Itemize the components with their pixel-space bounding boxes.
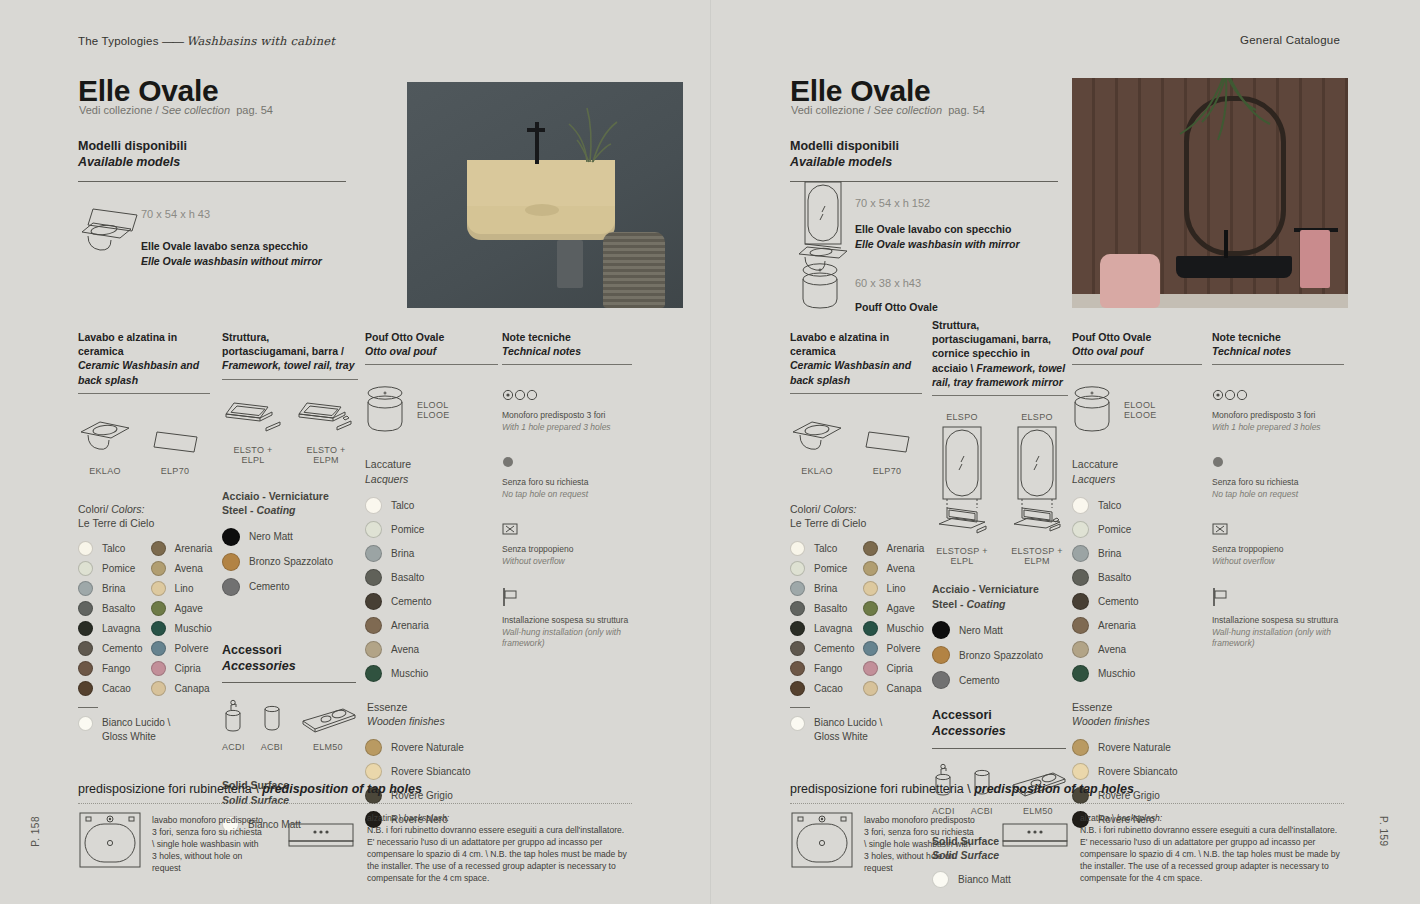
color-name: Polvere xyxy=(887,643,921,654)
color-name: Talco xyxy=(102,543,125,554)
notes-list-right: Monoforo predisposto 3 fori With 1 hole … xyxy=(1212,387,1344,650)
wood-swatch xyxy=(365,763,382,780)
color-name: Brina xyxy=(814,583,837,594)
code-basin-left: EKLAO xyxy=(78,466,132,476)
steel-swatch xyxy=(932,646,950,664)
steel-name: Cemento xyxy=(249,581,290,592)
lacquer-name: Basalto xyxy=(1098,572,1131,583)
gloss-white-line1: Bianco Lucido \ xyxy=(814,717,882,728)
left-col1-header: Lavabo e alzatina in ceramica Ceramic Wa… xyxy=(78,330,210,394)
gloss-white-row: Bianco Lucido \ Gloss White xyxy=(790,716,922,744)
model1-desc-left: Elle Ovale lavabo senza specchio Elle Ov… xyxy=(141,239,322,268)
code-elool: ELOOL xyxy=(1124,400,1157,410)
wood-swatch-row: Rovere Naturale xyxy=(1072,739,1202,756)
lacquer-swatch xyxy=(1072,593,1089,610)
lacquer-name: Pomice xyxy=(391,524,424,535)
left-col3-header-it: Pouf Otto Ovale xyxy=(365,330,498,344)
photo-towel-pink xyxy=(1300,230,1330,288)
color-name: Avena xyxy=(175,563,203,574)
wall-hung-icon xyxy=(1212,588,1228,606)
color-swatch-row: Muschio xyxy=(151,621,213,636)
models-heading-it: Modelli disponibili xyxy=(790,138,1058,154)
lacquer-swatch xyxy=(365,545,382,562)
notes-list-left: Monoforo predisposto 3 fori With 1 hole … xyxy=(502,387,632,650)
gloss-white-line2: Gloss White xyxy=(814,731,868,742)
color-swatch-row: Basalto xyxy=(790,601,855,616)
color-swatch xyxy=(863,581,878,596)
tray-drawing-icon xyxy=(299,703,357,733)
color-swatch xyxy=(151,641,166,656)
page-title-left: Elle Ovale xyxy=(78,74,218,108)
lacquer-swatch-row: Basalto xyxy=(365,569,498,586)
tap-holes-note1-left: lavabo monoforo predisposto 3 fori, senz… xyxy=(152,814,264,874)
tap-holes-heading-right: predisposizione fori rubinetteria \ pred… xyxy=(790,782,1134,796)
swatch-divider xyxy=(78,707,98,708)
color-swatch-row: Polvere xyxy=(863,641,925,656)
lacquer-swatch-row: Muschio xyxy=(1072,665,1202,682)
color-name: Brina xyxy=(102,583,125,594)
lacquer-swatch-row: Arenaria xyxy=(1072,617,1202,634)
color-swatch-row: Lino xyxy=(863,581,925,596)
no-overflow-icon xyxy=(1212,523,1228,535)
note-en: Without overflow xyxy=(1212,556,1344,568)
color-name: Basalto xyxy=(814,603,847,614)
code-elm50-left: ELM50 xyxy=(299,742,357,752)
tumbler-drawing-icon xyxy=(262,703,282,733)
tap-holes-dotted-rule-right xyxy=(790,803,1344,804)
color-name: Muschio xyxy=(887,623,924,634)
lacquer-swatch-row: Pomice xyxy=(1072,521,1202,538)
backsplash-front-drawing-icon xyxy=(288,822,354,850)
color-swatch-row: Brina xyxy=(78,581,143,596)
tap-holes-heading-it: predisposizione fori rubinetteria \ xyxy=(790,782,974,796)
photo-towel xyxy=(557,240,583,288)
wood-swatch-row: Rovere Sbiancato xyxy=(1072,763,1202,780)
lacquer-swatch-row: Basalto xyxy=(1072,569,1202,586)
color-swatch xyxy=(790,601,805,616)
colori-column-2: Arenaria Avena Lino Agave xyxy=(151,541,213,701)
basin-drawing-icon xyxy=(790,416,844,456)
breadcrumb-section: The Typologies xyxy=(78,35,159,47)
laccature-swatches-left: Talco Pomice Brina Basalto xyxy=(365,497,498,682)
lacquer-name: Muschio xyxy=(391,668,428,679)
gloss-white-line1: Bianco Lucido \ xyxy=(102,717,170,728)
steel-swatches-left: Nero Matt Bronzo Spazzolato Cemento xyxy=(222,528,358,596)
laccature-swatches-right: Talco Pomice Brina Basalto xyxy=(1072,497,1202,682)
backsplash-front-drawing-icon xyxy=(1002,822,1068,850)
color-name: Muschio xyxy=(175,623,212,634)
note-it: Monoforo predisposto 3 fori xyxy=(1212,410,1344,422)
color-swatch-row: Lavagna xyxy=(790,621,855,636)
lacquer-name: Talco xyxy=(391,500,414,511)
color-swatch xyxy=(863,621,878,636)
lacquer-swatch-row: Avena xyxy=(1072,641,1202,658)
left-col3-header: Pouf Otto Ovale Otto oval pouf xyxy=(365,330,498,365)
note-en: Without overflow xyxy=(502,556,632,568)
color-swatch-row: Cipria xyxy=(151,661,213,676)
right-col3-header-en: Otto oval pouf xyxy=(1072,344,1202,358)
colori-title-left: Colori/ Colors: Le Terre di Cielo xyxy=(78,502,210,531)
color-name: Cemento xyxy=(814,643,855,654)
steel-swatches-right: Nero Matt Bronzo Spazzolato Cemento xyxy=(932,621,1068,689)
collection-ref-right: Vedi collezione / See collection pag. 54 xyxy=(791,104,985,116)
colori-title-it: Colori/ xyxy=(790,503,823,515)
colori-title-en: Colors: xyxy=(111,503,144,515)
right-col-notes: Note tecniche Technical notes Monoforo p… xyxy=(1212,330,1344,650)
color-swatch xyxy=(790,621,805,636)
lacquer-name: Avena xyxy=(391,644,419,655)
note2-label-en: backsplash: xyxy=(404,813,449,823)
page-number-left: P. 158 xyxy=(30,816,41,847)
color-name: Cacao xyxy=(814,683,843,694)
lacquer-swatch xyxy=(365,617,382,634)
wood-swatch xyxy=(1072,739,1089,756)
photo-faucet xyxy=(1224,230,1228,258)
color-name: Lavagna xyxy=(814,623,852,634)
color-swatch xyxy=(78,581,93,596)
color-swatch-row: Cipria xyxy=(863,661,925,676)
right-col1-header-it: Lavabo e alzatina in ceramica xyxy=(790,330,922,358)
color-swatch xyxy=(790,716,805,731)
color-swatch xyxy=(790,561,805,576)
product-photo-left xyxy=(407,82,683,308)
color-swatch xyxy=(863,661,878,676)
model1-dims-left: 70 x 54 x h 43 xyxy=(141,208,210,220)
lacquer-swatch xyxy=(1072,569,1089,586)
photo-backsplash xyxy=(467,160,615,208)
right-col3-header-it: Pouf Otto Ovale xyxy=(1072,330,1202,344)
model1-dims-right: 70 x 54 x h 152 xyxy=(855,197,930,209)
page-number-right: P. 159 xyxy=(1378,816,1389,847)
lacquer-name: Pomice xyxy=(1098,524,1131,535)
color-name: Agave xyxy=(175,603,203,614)
basin-top-view-drawing-icon xyxy=(791,812,853,868)
steel-swatch-row: Bronzo Spazzolato xyxy=(222,553,358,571)
basin-top-view-drawing-icon xyxy=(79,812,141,868)
wood-swatch-row: Rovere Sbiancato xyxy=(365,763,498,780)
code-basin-right: EKLAO xyxy=(790,466,844,476)
color-swatch-row: Cemento xyxy=(790,641,855,656)
colori-subtitle: Le Terre di Cielo xyxy=(78,517,154,529)
essenze-title-it: Essenze xyxy=(1072,700,1202,715)
lacquer-swatch xyxy=(365,497,382,514)
lacquer-swatch-row: Talco xyxy=(365,497,498,514)
lacquer-swatch-row: Muschio xyxy=(365,665,498,682)
solid-surface-name: Bianco Matt xyxy=(958,874,1011,885)
laccature-title-it: Laccature xyxy=(1072,457,1202,472)
tap-holes-heading-en: predisposition of tap holes xyxy=(974,782,1134,796)
steel-swatch xyxy=(932,621,950,639)
color-swatch-row: Agave xyxy=(151,601,213,616)
color-swatch xyxy=(790,541,805,556)
photo-plant-icon xyxy=(557,100,627,164)
right-col4-header-en: Technical notes xyxy=(1212,344,1344,358)
lacquer-swatch xyxy=(365,569,382,586)
code-mirror-right: ELSPO xyxy=(1006,412,1068,422)
accessories-heading-it: Accessori xyxy=(222,642,356,658)
lacquer-swatch-row: Cemento xyxy=(1072,593,1202,610)
steel-title-left: Acciaio - Verniciature Solid SurfaceStee… xyxy=(222,489,358,518)
collection-ref-en: See collection xyxy=(162,104,231,116)
models-heading-left: Modelli disponibili Available models xyxy=(78,138,346,182)
note-it: Installazione sospesa su struttura xyxy=(1212,615,1344,627)
color-swatch xyxy=(790,661,805,676)
right-col3-header: Pouf Otto Ovale Otto oval pouf xyxy=(1072,330,1202,365)
left-col-framework: Struttura, portasciugamani, barra / Fram… xyxy=(222,330,358,838)
lacquer-swatch xyxy=(365,593,382,610)
collection-ref-en: See collection xyxy=(874,104,943,116)
note-it: Senza troppopieno xyxy=(1212,544,1344,556)
color-swatch-row: Canapa xyxy=(863,681,925,696)
photo-basket xyxy=(603,232,665,308)
three-holes-icon xyxy=(1212,389,1248,401)
steel-swatch-row: Bronzo Spazzolato xyxy=(932,646,1068,664)
left-col-pouf: Pouf Otto Ovale Otto oval pouf ELOOL ELO… xyxy=(365,330,498,835)
pouf-model-drawing-icon xyxy=(800,262,840,312)
color-swatch xyxy=(78,541,93,556)
tap-holes-heading-en: predisposition of tap holes xyxy=(262,782,422,796)
color-name: Canapa xyxy=(887,683,922,694)
color-name: Pomice xyxy=(102,563,135,574)
color-name: Canapa xyxy=(175,683,210,694)
note2-label-it: alzatina \ xyxy=(1080,813,1117,823)
color-swatch xyxy=(78,661,93,676)
color-swatch-row: Cemento xyxy=(78,641,143,656)
essenze-title-right: Essenze Wooden finishes xyxy=(1072,700,1202,729)
wood-swatch xyxy=(365,739,382,756)
note-en: No tap hole on request xyxy=(1212,489,1344,501)
pouf-drawing-icon xyxy=(1072,385,1112,435)
catalogue-spread: The Typologies —— Washbasins with cabine… xyxy=(0,0,1420,904)
note-en: No tap hole on request xyxy=(502,489,632,501)
color-swatch-row: Canapa xyxy=(151,681,213,696)
color-swatch-row: Agave xyxy=(863,601,925,616)
three-holes-icon xyxy=(502,389,538,401)
lacquer-swatch xyxy=(365,521,382,538)
color-name: Bianco Lucido \ Gloss White xyxy=(814,716,882,744)
color-name: Cipria xyxy=(175,663,201,674)
note-it: Installazione sospesa su struttura xyxy=(502,615,632,627)
color-swatch xyxy=(151,541,166,556)
color-swatch-row: Brina xyxy=(790,581,855,596)
color-swatch xyxy=(151,601,166,616)
pouf-codes-right: ELOOL ELOOE xyxy=(1124,400,1157,420)
right-col1-header: Lavabo e alzatina in ceramica Ceramic Wa… xyxy=(790,330,922,394)
model2-desc-right: Pouff Otto Ovale xyxy=(855,300,938,315)
color-name: Bianco Lucido \ Gloss White xyxy=(102,716,170,744)
color-name: Fango xyxy=(102,663,130,674)
note-en: Wall-hung installation (only with framew… xyxy=(1212,627,1344,651)
lacquer-swatch xyxy=(1072,497,1089,514)
backsplash-panel-drawing-icon xyxy=(862,426,912,456)
lacquer-swatch xyxy=(1072,641,1089,658)
tap-holes-note1-right: lavabo monoforo predisposto 3 fori, senz… xyxy=(864,814,976,874)
lacquer-name: Brina xyxy=(1098,548,1121,559)
color-swatch-row: Basalto xyxy=(78,601,143,616)
color-swatch xyxy=(151,661,166,676)
wood-swatch-row: Rovere Naturale xyxy=(365,739,498,756)
note-it: Monoforo predisposto 3 fori xyxy=(502,410,632,422)
color-swatch-row: Cacao xyxy=(78,681,143,696)
note2-label-en: backsplash: xyxy=(1117,813,1162,823)
lacquer-swatch-row: Avena xyxy=(365,641,498,658)
left-col-ceramic: Lavabo e alzatina in ceramica Ceramic Wa… xyxy=(78,330,210,749)
photo-faucet-spout xyxy=(527,128,545,132)
basin-drawing-icon xyxy=(78,416,132,456)
color-name: Agave xyxy=(887,603,915,614)
color-swatch-row: Arenaria xyxy=(863,541,925,556)
color-name: Basalto xyxy=(102,603,135,614)
steel-name: Nero Matt xyxy=(959,625,1003,636)
color-swatch xyxy=(151,561,166,576)
photo-pouf-pink xyxy=(1100,254,1160,308)
left-col1-header-en: Ceramic Washbasin and back splash xyxy=(78,358,210,386)
color-swatch-row: Talco xyxy=(790,541,855,556)
no-hole-icon xyxy=(1212,456,1224,468)
lacquer-swatch-row: Arenaria xyxy=(365,617,498,634)
mirror-framework-drawing-icon xyxy=(937,426,987,538)
pouf-codes-left: ELOOL ELOOE xyxy=(417,400,450,420)
code-frame2-right: ELSTOSP + ELPM xyxy=(1006,546,1068,566)
colori-title-right: Colori/ Colors: Le Terre di Cielo xyxy=(790,502,922,531)
accessories-heading-left: Accessori Accessories xyxy=(222,642,356,684)
lacquer-swatch xyxy=(365,641,382,658)
no-hole-icon xyxy=(502,456,514,468)
color-swatch-row: Pomice xyxy=(790,561,855,576)
color-swatch xyxy=(78,716,93,731)
color-swatch-row: Cacao xyxy=(790,681,855,696)
steel-title-en: Steel - Coating xyxy=(932,597,1068,612)
lacquer-swatch xyxy=(365,665,382,682)
code-elool: ELOOL xyxy=(417,400,450,410)
color-swatch xyxy=(78,621,93,636)
page-gutter-divider xyxy=(710,0,711,904)
collection-ref-page: pag. 54 xyxy=(948,104,985,116)
note-en: With 1 hole prepared 3 holes xyxy=(502,422,632,434)
mirror-framework-towel-drawing-icon xyxy=(1012,426,1062,538)
lacquer-swatch-row: Brina xyxy=(365,545,498,562)
note2-body: N.B. i fori rubinetto dovranno essere es… xyxy=(367,825,627,883)
colori-title-en: Colors: xyxy=(823,503,856,515)
essenze-title-left: Essenze Wooden finishes xyxy=(367,700,498,729)
steel-swatch-row: Cemento xyxy=(222,578,358,596)
code-frame2-left: ELSTO + ELPM xyxy=(294,445,358,465)
code-splash-right: ELP70 xyxy=(862,466,912,476)
lacquer-swatch-row: Talco xyxy=(1072,497,1202,514)
color-swatch xyxy=(78,641,93,656)
color-swatch xyxy=(151,621,166,636)
steel-title-it: Acciaio - Verniciature xyxy=(222,489,358,504)
tap-holes-note2-right: alzatina \ backsplash: N.B. i fori rubin… xyxy=(1080,812,1344,884)
tap-holes-heading-left: predisposizione fori rubinetteria \ pred… xyxy=(78,782,422,796)
colori-subtitle: Le Terre di Cielo xyxy=(790,517,866,529)
left-col4-header: Note tecniche Technical notes xyxy=(502,330,632,365)
header-right-label: General Catalogue xyxy=(1240,34,1340,46)
wood-name: Rovere Naturale xyxy=(1098,742,1171,753)
essenze-title-en: Wooden finishes xyxy=(367,714,498,729)
steel-swatch xyxy=(932,671,950,689)
note-en: With 1 hole prepared 3 holes xyxy=(1212,422,1344,434)
color-name: Cipria xyxy=(887,663,913,674)
steel-swatch-row: Nero Matt xyxy=(222,528,358,546)
steel-swatch xyxy=(222,528,240,546)
color-name: Polvere xyxy=(175,643,209,654)
color-swatch xyxy=(863,561,878,576)
lacquer-name: Arenaria xyxy=(391,620,429,631)
photo-basin-bowl xyxy=(525,204,559,216)
left-col2-header-en: Framework, towel rail, tray xyxy=(222,359,354,371)
model1-desc-it: Elle Ovale lavabo con specchio xyxy=(855,222,1020,237)
color-swatch-row: Arenaria xyxy=(151,541,213,556)
color-swatch-row: Lavagna xyxy=(78,621,143,636)
left-col4-header-it: Note tecniche xyxy=(502,330,632,344)
color-swatch-row: Fango xyxy=(78,661,143,676)
collection-ref-it: Vedi collezione / xyxy=(791,104,874,116)
code-splash-left: ELP70 xyxy=(150,466,200,476)
right-col-pouf: Pouf Otto Ovale Otto oval pouf ELOOL ELO… xyxy=(1072,330,1202,835)
page-title-right: Elle Ovale xyxy=(790,74,930,108)
lacquer-name: Arenaria xyxy=(1098,620,1136,631)
collection-ref-it: Vedi collezione / xyxy=(79,104,162,116)
model1-desc-right: Elle Ovale lavabo con specchio Elle Oval… xyxy=(855,222,1020,251)
backsplash-panel-drawing-icon xyxy=(150,426,200,456)
gloss-white-row: Bianco Lucido \ Gloss White xyxy=(78,716,210,744)
color-name: Lino xyxy=(887,583,906,594)
models-heading-it: Modelli disponibili xyxy=(78,138,346,154)
model1-desc-en: Elle Ovale washbasin without mirror xyxy=(141,254,322,269)
breadcrumb: The Typologies —— Washbasins with cabine… xyxy=(78,34,335,48)
lacquer-swatch xyxy=(1072,545,1089,562)
color-swatch xyxy=(790,581,805,596)
color-swatch-row: Muschio xyxy=(863,621,925,636)
product-photo-right xyxy=(1072,78,1348,308)
color-name: Cemento xyxy=(102,643,143,654)
wood-name: Rovere Sbiancato xyxy=(391,766,471,777)
colori-column-1: Talco Pomice Brina Basalto xyxy=(78,541,143,701)
note-it: Senza foro su richiesta xyxy=(1212,477,1344,489)
code-acdi-left: ACDI xyxy=(222,742,245,752)
collection-ref-left: Vedi collezione / See collection pag. 54 xyxy=(79,104,273,116)
steel-swatch-row: Cemento xyxy=(932,671,1068,689)
lacquer-swatch-row: Brina xyxy=(1072,545,1202,562)
collection-ref-page: pag. 54 xyxy=(236,104,273,116)
color-swatch xyxy=(151,581,166,596)
color-swatch-row: Polvere xyxy=(151,641,213,656)
left-col3-header-en: Otto oval pouf xyxy=(365,344,498,358)
wood-name: Rovere Naturale xyxy=(391,742,464,753)
accessories-heading-en: Accessories xyxy=(932,723,1066,739)
lacquer-swatch xyxy=(1072,617,1089,634)
laccature-title-left: Laccature Lacquers xyxy=(365,457,498,486)
code-acbi-left: ACBI xyxy=(261,742,283,752)
color-swatch-row: Pomice xyxy=(78,561,143,576)
accessories-heading-right: Accessori Accessories xyxy=(932,707,1066,749)
left-col1-header-it: Lavabo e alzatina in ceramica xyxy=(78,330,210,358)
swatch-divider xyxy=(790,707,810,708)
code-frame1-left: ELSTO + ELPL xyxy=(222,445,284,465)
color-swatch xyxy=(863,681,878,696)
color-name: Fango xyxy=(814,663,842,674)
photo-plant-icon xyxy=(1168,78,1278,148)
note-it: Senza troppopieno xyxy=(502,544,632,556)
lacquer-name: Basalto xyxy=(391,572,424,583)
note-it: Senza foro su richiesta xyxy=(502,477,632,489)
gloss-white-line2: Gloss White xyxy=(102,731,156,742)
models-heading-en: Available models xyxy=(78,154,346,170)
breadcrumb-dash: —— xyxy=(162,35,183,47)
wood-name: Rovere Sbiancato xyxy=(1098,766,1178,777)
laccature-title-en: Lacquers xyxy=(1072,472,1202,487)
